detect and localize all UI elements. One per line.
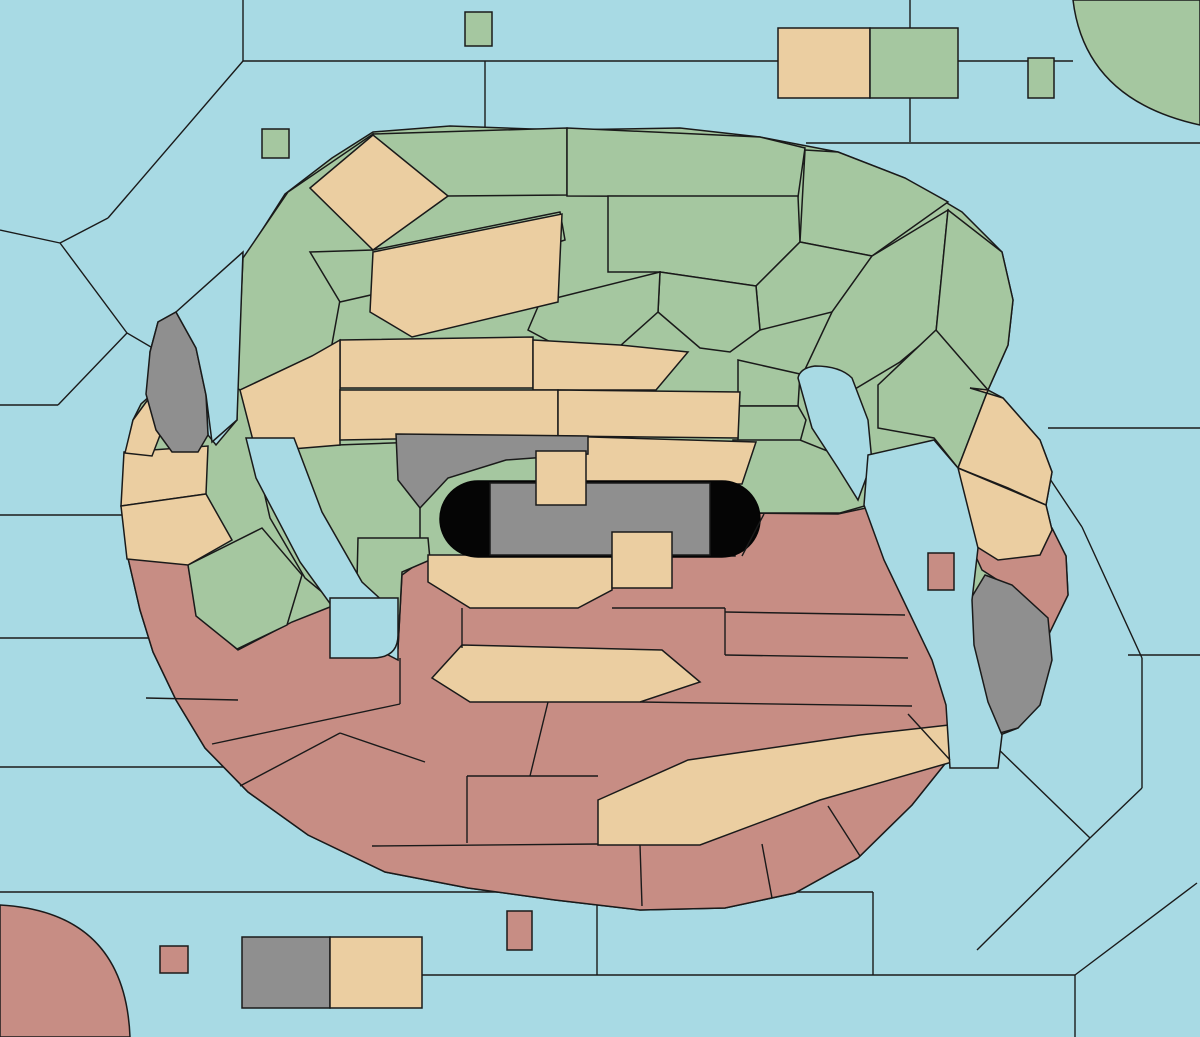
region-skr[interactable] xyxy=(536,451,586,505)
region-westberg-ostberg[interactable] xyxy=(490,483,710,555)
region-chapablublek[interactable] xyxy=(432,645,700,702)
region-helom[interactable] xyxy=(870,28,958,98)
region-elfland[interactable] xyxy=(778,28,870,98)
region-land-der-wiesel[interactable] xyxy=(340,390,558,440)
region-pad-suedwest[interactable] xyxy=(160,946,188,973)
region-pad-lithium[interactable] xyxy=(507,911,532,950)
region-esmaladan[interactable] xyxy=(738,406,806,442)
game-map-canvas xyxy=(0,0,1200,1037)
region-pad-fungali[interactable] xyxy=(262,129,289,158)
world-map xyxy=(0,0,1200,1037)
region-ornheim[interactable] xyxy=(330,937,422,1008)
region-hugl[interactable] xyxy=(558,390,740,438)
region-rotbucht-water[interactable] xyxy=(330,598,398,658)
region-eun[interactable] xyxy=(612,532,672,588)
region-abaun[interactable] xyxy=(242,937,330,1008)
region-tel[interactable] xyxy=(340,337,533,388)
region-pad-bucht[interactable] xyxy=(928,553,954,590)
region-pad-nordost[interactable] xyxy=(1028,58,1054,98)
region-pad-polarmeer[interactable] xyxy=(465,12,492,46)
